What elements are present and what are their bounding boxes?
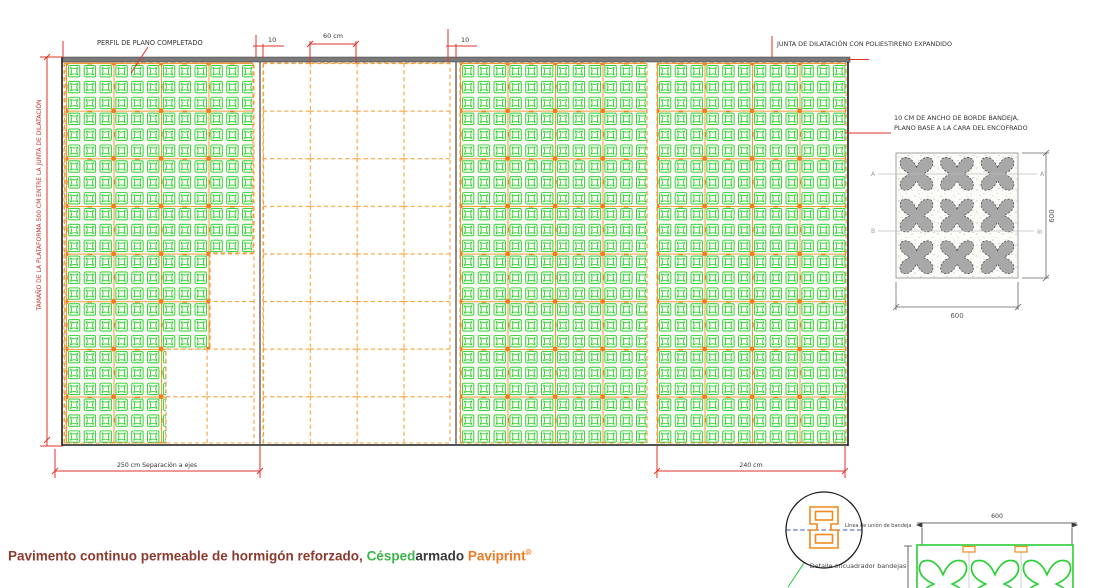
tray-elevation-dim: 600: [991, 513, 1003, 520]
brand-paviprint: Paviprint: [468, 549, 526, 564]
tray-outline: [917, 545, 1073, 588]
section-label-a: A: [871, 171, 876, 178]
dim-label-240cm: 240 cm: [739, 462, 762, 469]
label-tamano-plataforma: TAMAÑO DE LA PLATAFORMA 500 CM ENTRE LA …: [36, 99, 43, 311]
pavement-plan-drawing: PERFIL DE PLANO COMPLETADO 10 60 cm 10 J…: [0, 0, 1107, 588]
product-title-text: Pavimento continuo permeable de hormigón…: [8, 549, 367, 564]
registered-mark: ®: [526, 548, 532, 557]
dim-label-250cm: 250 cm Separación a ejes: [117, 461, 197, 469]
label-borde-bandeja-line1: 10 CM DE ANCHO DE BORDE BANDEJA,: [894, 114, 1019, 122]
tray-detail-dim-height: 600: [1048, 209, 1056, 222]
brand-cesped: Césped: [367, 549, 416, 564]
main-plan: [62, 57, 850, 446]
tray-detail-plan: A A' B B' 600 600: [871, 150, 1056, 320]
label-junta-dilatacion: JUNTA DE DILATACIÓN CON POLIESTIRENO EXP…: [776, 39, 952, 48]
label-linea-union: Línea de unión de bandeja: [845, 522, 911, 529]
product-title: Pavimento continuo permeable de hormigón…: [8, 548, 768, 564]
label-borde-bandeja-line2: PLANO BASE A LA CARA DEL ENCOFRADO: [894, 124, 1028, 132]
label-perfil-plano: PERFIL DE PLANO COMPLETADO: [97, 39, 203, 47]
detail-leader-line: [788, 563, 804, 587]
tray-pavers: [919, 560, 1070, 588]
platform3-paver-field-left: [460, 63, 647, 443]
section-label-a2: A': [1040, 171, 1046, 178]
section-label-b: B: [871, 228, 875, 235]
platform2-empty-trays: [263, 63, 450, 443]
gray-paver-grid: [900, 157, 1014, 273]
brand-armado: armado: [415, 549, 464, 564]
dim-label-10-left: 10: [268, 36, 276, 44]
tray-clips: [963, 547, 1027, 553]
connector-detail: Línea de unión de bandeja Detalle encuad…: [786, 492, 911, 587]
platform3-paver-field-right: [657, 63, 846, 443]
tray-detail-dim-width: 600: [950, 312, 963, 320]
dim-label-10-right: 10: [461, 36, 469, 44]
section-label-b2: B': [1037, 228, 1044, 234]
dim-label-60cm: 60 cm: [323, 32, 343, 40]
label-detalle-encuadrador: Detalle encuadrador bandejas: [810, 562, 907, 570]
plan-sheet: { "colors": { "paver_green": "#29cf35", …: [0, 0, 1107, 588]
tray-elevation-detail: 600: [904, 513, 1077, 588]
